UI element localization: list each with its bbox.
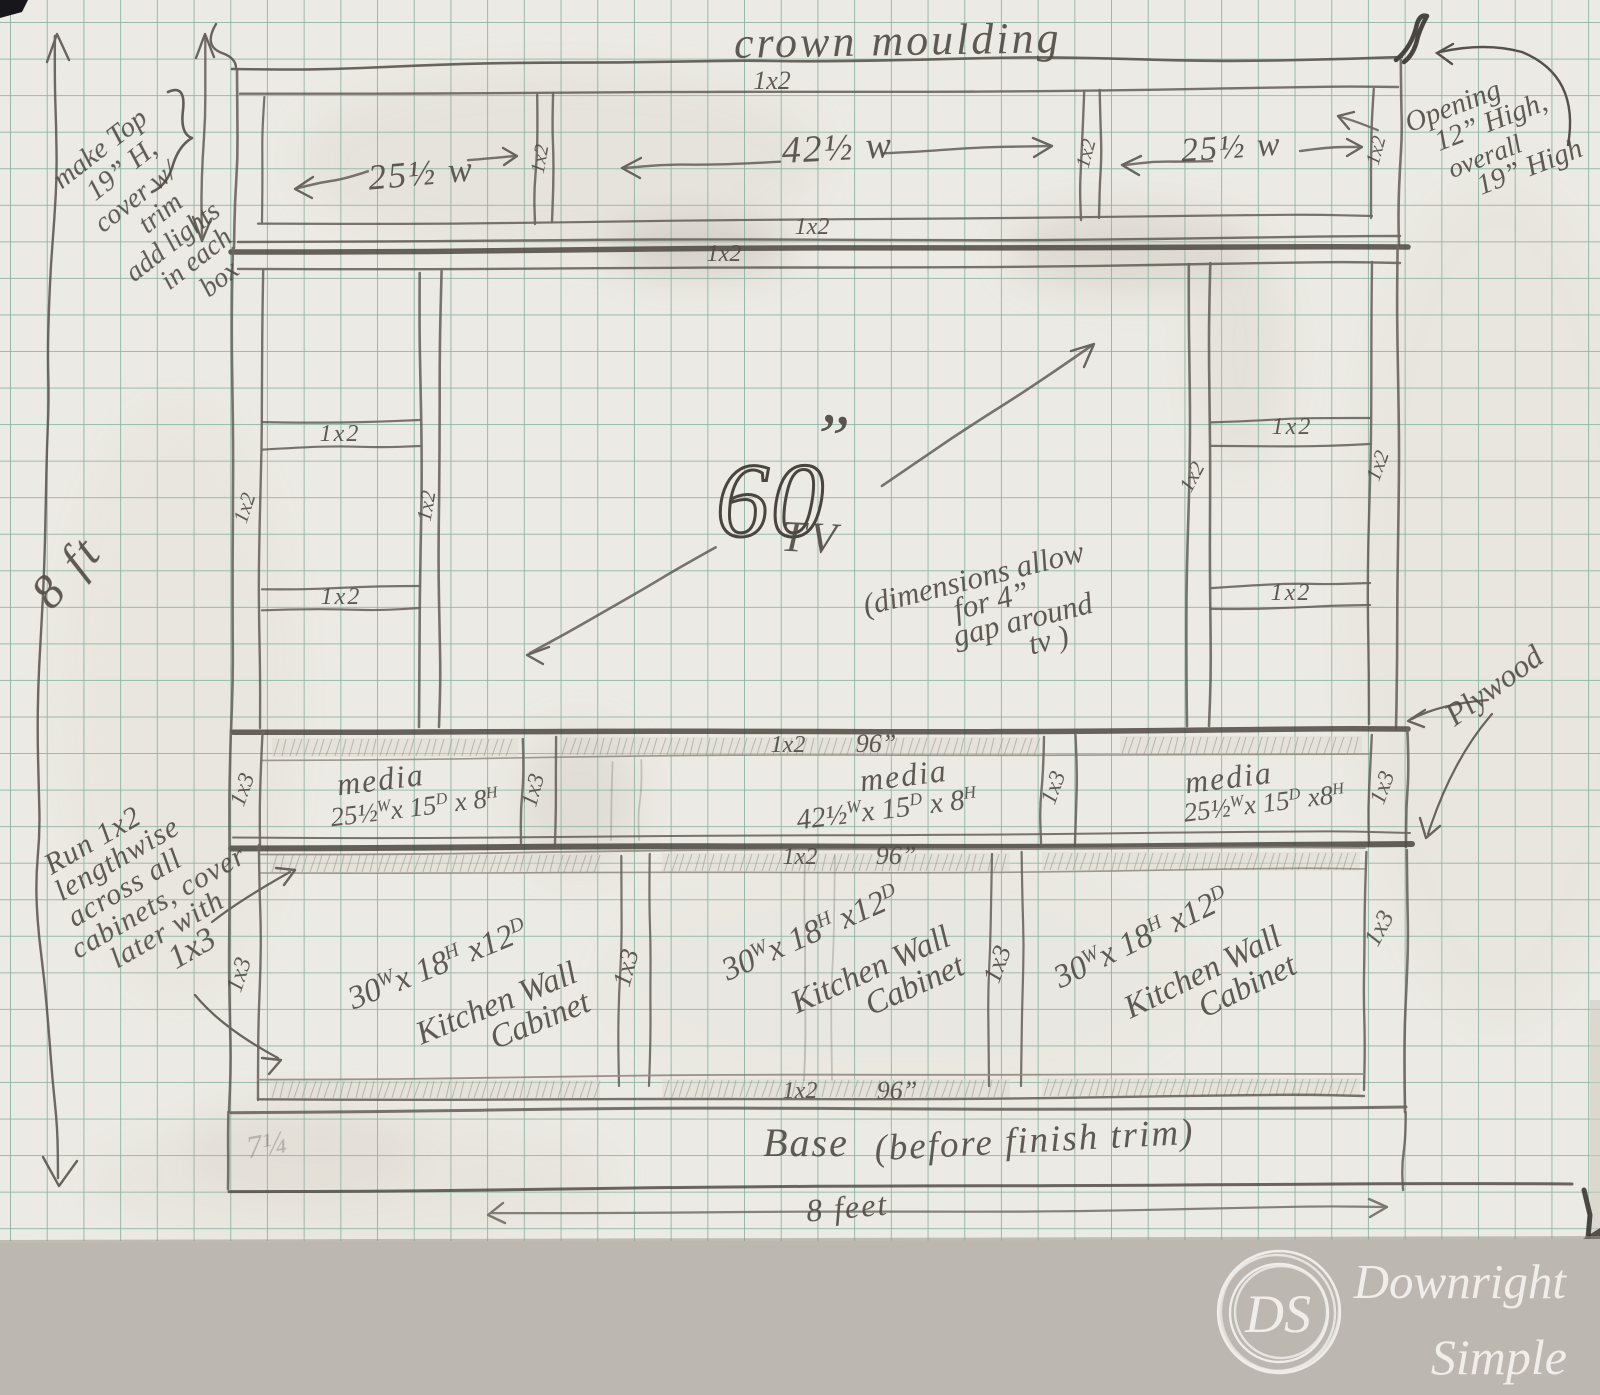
svg-text:8 feet: 8 feet: [805, 1186, 890, 1229]
svg-text:1x2: 1x2: [1272, 414, 1313, 440]
svg-text:Simple: Simple: [1431, 1329, 1567, 1385]
svg-text:1x2: 1x2: [321, 584, 362, 610]
svg-text:1x2: 1x2: [783, 1078, 818, 1104]
svg-text:1x2: 1x2: [795, 214, 830, 240]
svg-text:25½ w: 25½ w: [1180, 126, 1283, 170]
svg-text:96”: 96”: [876, 841, 916, 870]
svg-text:42½ w: 42½ w: [781, 124, 894, 172]
svg-text:7¼: 7¼: [243, 1123, 289, 1165]
svg-text:TV: TV: [780, 512, 843, 564]
svg-text:1x2: 1x2: [753, 66, 791, 95]
svg-text:96”: 96”: [877, 1076, 917, 1105]
svg-text:crown moulding: crown moulding: [734, 13, 1062, 68]
svg-text:1x2: 1x2: [707, 241, 742, 267]
svg-text:1x2: 1x2: [771, 732, 806, 758]
svg-text:Base: Base: [763, 1120, 849, 1165]
svg-text:1x2: 1x2: [320, 421, 361, 447]
svg-text:Downright: Downright: [1353, 1254, 1568, 1309]
svg-text:1x2: 1x2: [1271, 580, 1312, 606]
svg-text:96”: 96”: [856, 729, 896, 758]
svg-text:DS: DS: [1244, 1284, 1311, 1344]
svg-text:1x2: 1x2: [783, 844, 818, 870]
